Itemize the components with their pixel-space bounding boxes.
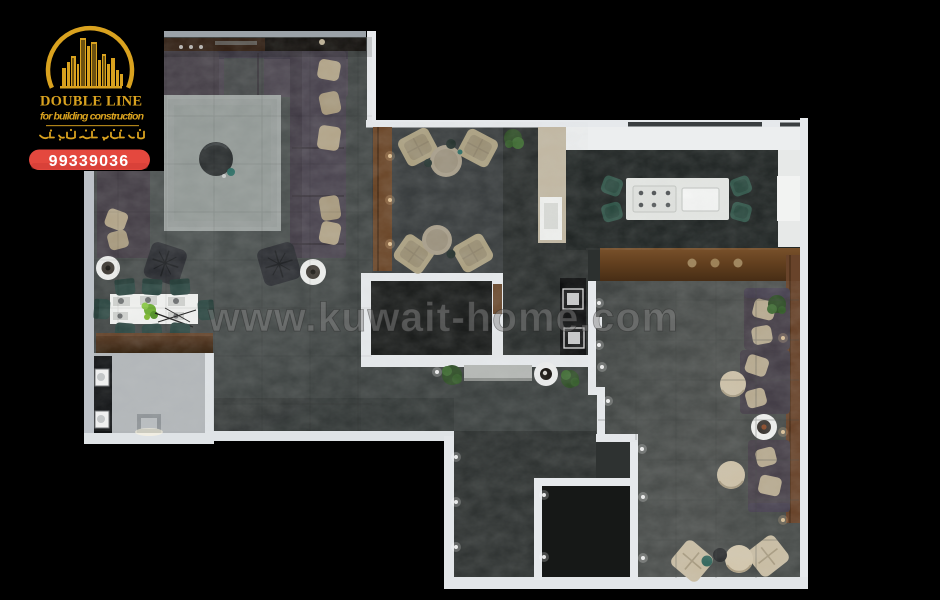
svg-text:for building construction: for building construction [40,111,144,123]
svg-text:DOUBLE LINE: DOUBLE LINE [40,94,144,110]
svg-text:99339036: 99339036 [49,153,130,170]
svg-text:www.kuwait-home.com: www.kuwait-home.com [207,294,678,340]
